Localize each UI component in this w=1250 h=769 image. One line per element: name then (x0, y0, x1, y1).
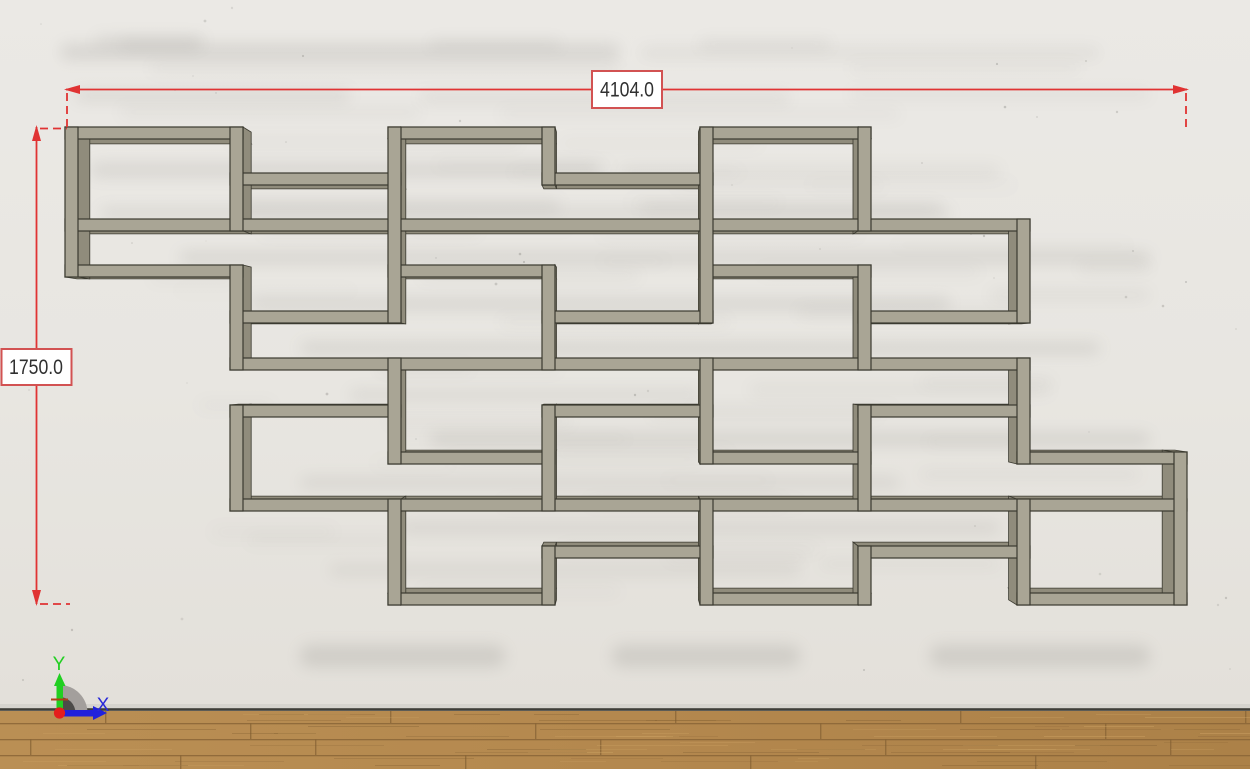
svg-text:4104.0: 4104.0 (600, 79, 654, 102)
svg-text:X: X (97, 695, 110, 716)
svg-text:1750.0: 1750.0 (9, 356, 63, 379)
svg-text:Y: Y (53, 654, 66, 675)
